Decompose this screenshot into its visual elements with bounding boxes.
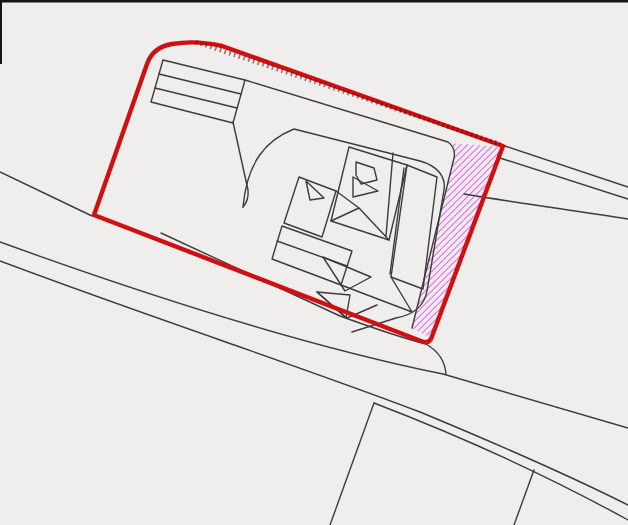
canvas-left-border — [0, 0, 2, 64]
parcel-line-south — [161, 233, 446, 374]
building-gable-triangle-1 — [323, 257, 371, 291]
road-edge-northeast-lower — [500, 158, 628, 199]
site-plan-drawing — [0, 0, 628, 525]
building-zigzag-roofline — [331, 191, 389, 240]
road-edge-northeast-upper — [505, 146, 628, 187]
courtyard-loop-outline — [243, 129, 444, 332]
site-plan-canvas — [0, 0, 628, 525]
building-strip-divider-2 — [155, 88, 237, 108]
road-edge-lower — [374, 403, 628, 520]
road-edge-northwest — [0, 172, 92, 216]
building-right-divider — [390, 168, 404, 274]
plot-boundary-west — [330, 403, 374, 525]
building-left-block — [284, 177, 336, 237]
canvas-top-border — [0, 0, 628, 3]
plot-boundary-east — [514, 470, 534, 525]
road-edge-northeast-curve — [464, 194, 628, 219]
building-notch-triangle — [306, 181, 324, 200]
building-upper-divider — [386, 153, 393, 236]
parcel-connector-line — [233, 122, 248, 207]
building-lower-block — [272, 226, 352, 285]
building-strip-divider-1 — [159, 74, 241, 94]
road-edge-main-upper — [0, 242, 628, 428]
